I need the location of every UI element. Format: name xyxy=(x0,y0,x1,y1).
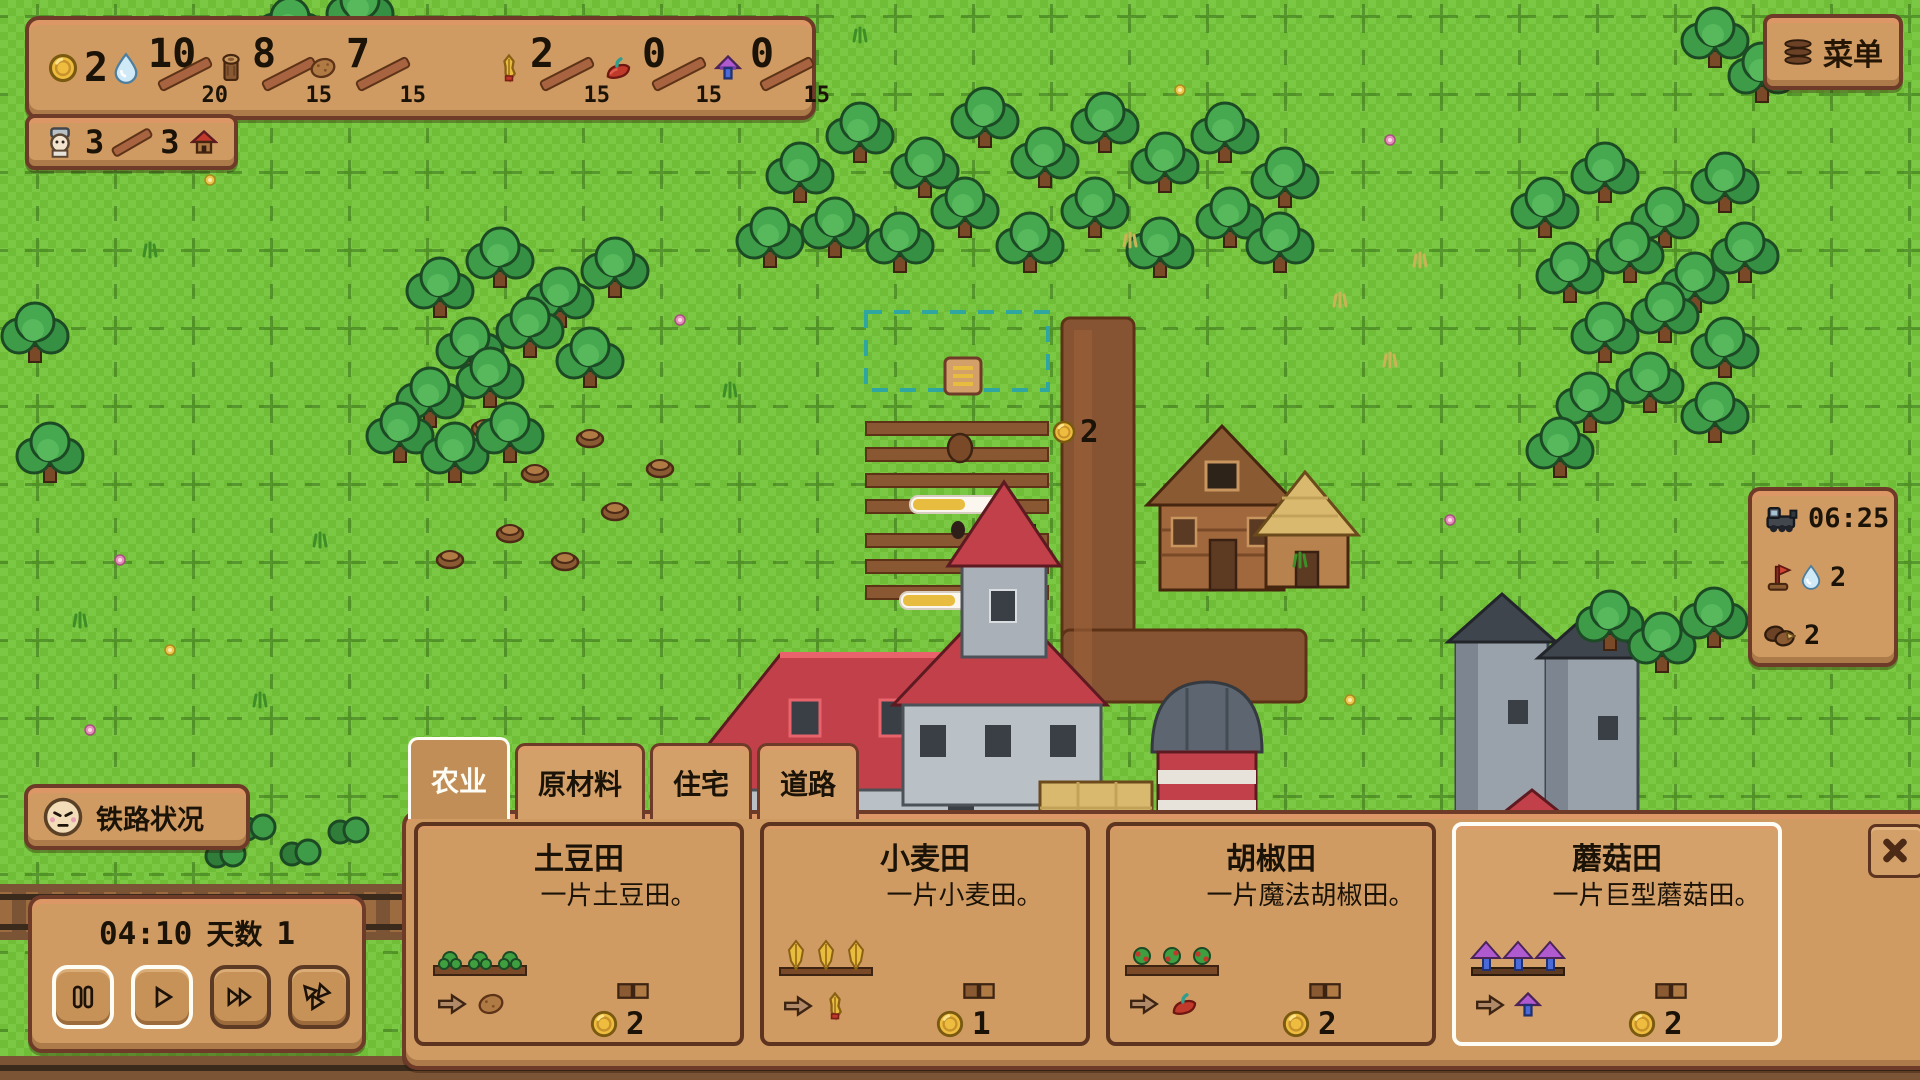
tab-label: 农业 xyxy=(431,760,487,800)
pepper-icon xyxy=(602,54,634,82)
train-arrival-time: 06:25 xyxy=(1808,503,1889,534)
build-card-mushroom-field[interactable]: 蘑菇田 一片巨型蘑菇田。 xyxy=(1452,822,1782,1046)
cost-value: 1 xyxy=(972,1006,991,1042)
fast-forward-button[interactable] xyxy=(210,965,272,1029)
train-water-row: 2 xyxy=(1764,562,1882,593)
card-cost: 1 xyxy=(936,1006,991,1042)
card-title: 蘑菇田 xyxy=(1456,834,1778,878)
house-icon xyxy=(190,129,218,155)
card-cost: 2 xyxy=(590,1006,645,1042)
play-icon xyxy=(147,982,177,1012)
resource-mushrooms: 0 15 xyxy=(714,20,826,116)
mushroom-icon xyxy=(1514,990,1542,1020)
fast-forward-icon xyxy=(224,982,256,1012)
floating-coin-value: 2 xyxy=(1080,414,1099,450)
tab-agriculture[interactable]: 农业 xyxy=(408,737,510,819)
day-number: 1 xyxy=(276,916,295,952)
resource-water: 10 20 xyxy=(112,20,224,116)
population-current: 3 xyxy=(85,123,104,161)
signal-flag-icon xyxy=(1764,562,1792,592)
population-badge: 3 3 xyxy=(25,114,238,170)
resource-wheat: 2 15 xyxy=(496,20,606,116)
resource-value: 0 xyxy=(642,34,666,74)
footprint-icon xyxy=(1654,982,1688,1000)
resource-coins: 2 xyxy=(48,20,108,116)
resource-max: 15 xyxy=(400,83,427,108)
train-icon xyxy=(1764,504,1800,534)
resource-max: 15 xyxy=(804,83,831,108)
card-title: 土豆田 xyxy=(418,834,740,878)
fraction-slash xyxy=(110,126,154,158)
card-description: 一片魔法胡椒田。 xyxy=(1198,880,1423,914)
time-control-panel: 04:10 天数 1 xyxy=(28,895,366,1053)
close-build-panel-button[interactable] xyxy=(1868,824,1920,878)
coin-icon xyxy=(48,53,78,83)
tab-housing[interactable]: 住宅 xyxy=(650,743,752,819)
train-arrival-row: 06:25 xyxy=(1764,503,1882,534)
resource-bar: 2 10 20 8 15 xyxy=(25,16,816,120)
mushroom-icon xyxy=(714,53,742,83)
water-icon xyxy=(1800,564,1822,590)
resource-value: 7 xyxy=(346,34,370,74)
game-screen: 2 2 10 20 8 15 xyxy=(0,0,1920,1080)
arrow-icon xyxy=(782,993,814,1019)
mushroom-field-sprite xyxy=(1470,938,1566,978)
time-header: 04:10 天数 1 xyxy=(44,913,350,953)
cost-value: 2 xyxy=(1318,1006,1337,1042)
card-description: 一片土豆田。 xyxy=(506,880,731,914)
menu-button[interactable]: 菜单 xyxy=(1763,14,1903,90)
wheat-icon xyxy=(496,52,522,84)
tab-raw-materials[interactable]: 原材料 xyxy=(515,743,645,819)
tab-label: 原材料 xyxy=(538,763,622,803)
play-button[interactable] xyxy=(131,965,193,1029)
tab-label: 道路 xyxy=(780,763,836,803)
population-max: 3 xyxy=(160,123,179,161)
card-cost: 2 xyxy=(1628,1006,1683,1042)
build-tabs: 农业 原材料 住宅 道路 xyxy=(408,737,859,819)
pause-icon xyxy=(68,982,98,1012)
villager-icon xyxy=(45,126,75,158)
log-icon xyxy=(218,52,244,84)
tab-label: 住宅 xyxy=(673,763,729,803)
water-icon xyxy=(112,52,140,84)
pepper-icon xyxy=(1168,990,1200,1018)
coin-icon xyxy=(1052,420,1076,444)
build-card-wheat-field[interactable]: 小麦田 一片小麦田。 xyxy=(760,822,1090,1046)
pepper-field-sprite xyxy=(1124,938,1220,978)
resource-value: 2 xyxy=(84,48,108,88)
footprint-icon xyxy=(962,982,996,1000)
fastest-speed-button[interactable] xyxy=(288,965,350,1029)
resource-value: 8 xyxy=(252,34,276,74)
day-label: 天数 xyxy=(206,913,262,953)
potato-icon xyxy=(476,990,506,1018)
card-cost: 2 xyxy=(1282,1006,1337,1042)
wheat-icon xyxy=(822,990,848,1022)
face-icon xyxy=(42,796,84,838)
speed-controls xyxy=(44,965,350,1029)
pause-button[interactable] xyxy=(52,965,114,1029)
cost-value: 2 xyxy=(1664,1006,1683,1042)
railway-status-label: 铁路状况 xyxy=(96,798,204,837)
train-wood-row: 2 xyxy=(1764,620,1882,651)
build-cards: 土豆田 一片土豆田。 xyxy=(414,822,1782,1046)
floating-coin-reward: 2 xyxy=(1052,414,1099,450)
arrow-icon xyxy=(1128,991,1160,1017)
card-produces xyxy=(1128,990,1200,1018)
fastest-speed-icon xyxy=(302,981,336,1013)
footprint-icon xyxy=(616,982,650,1000)
menu-button-label: 菜单 xyxy=(1823,30,1883,74)
train-status-panel: 06:25 2 2 xyxy=(1748,487,1898,667)
arrow-icon xyxy=(436,991,468,1017)
build-card-pepper-field[interactable]: 胡椒田 一片魔法胡椒田。 xyxy=(1106,822,1436,1046)
arrow-icon xyxy=(1474,992,1506,1018)
clock-time: 04:10 xyxy=(99,916,192,952)
train-water-needed: 2 xyxy=(1830,562,1846,593)
hamburger-icon xyxy=(1783,39,1813,65)
build-card-potato-field[interactable]: 土豆田 一片土豆田。 xyxy=(414,822,744,1046)
build-panel: 土豆田 一片土豆田。 xyxy=(402,810,1920,1070)
resource-value: 0 xyxy=(750,34,774,74)
coin-icon xyxy=(590,1010,618,1038)
resource-potatoes: 7 15 xyxy=(308,20,422,116)
tab-roads[interactable]: 道路 xyxy=(757,743,859,819)
resource-value: 2 xyxy=(530,34,554,74)
cost-value: 2 xyxy=(626,1006,645,1042)
railway-status-button[interactable]: 铁路状况 xyxy=(24,784,250,850)
card-description: 一片巨型蘑菇田。 xyxy=(1544,880,1769,914)
card-produces xyxy=(436,990,506,1018)
coin-icon xyxy=(936,1010,964,1038)
woodpile-icon xyxy=(1764,623,1796,649)
train-wood-needed: 2 xyxy=(1804,620,1820,651)
coin-icon xyxy=(1282,1010,1310,1038)
card-title: 小麦田 xyxy=(764,834,1086,878)
card-title: 胡椒田 xyxy=(1110,834,1432,878)
card-produces xyxy=(1474,990,1542,1020)
wheat-field-sprite xyxy=(778,938,874,978)
potato-field-sprite xyxy=(432,938,528,978)
coin-icon xyxy=(1628,1010,1656,1038)
card-description: 一片小麦田。 xyxy=(852,880,1077,914)
potato-icon xyxy=(308,54,338,82)
resource-peppers: 0 15 xyxy=(602,20,718,116)
card-produces xyxy=(782,990,848,1022)
footprint-icon xyxy=(1308,982,1342,1000)
